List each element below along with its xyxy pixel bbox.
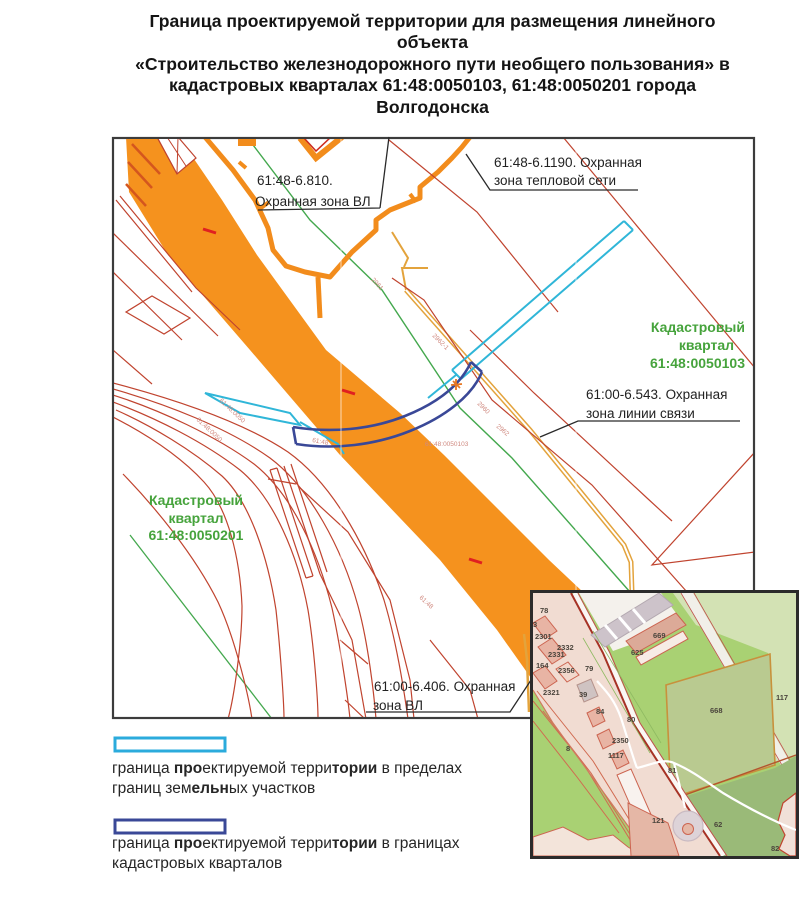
- svg-text:61:00-6.406. Охранная: 61:00-6.406. Охранная: [374, 679, 515, 694]
- svg-text:164: 164: [536, 661, 549, 670]
- svg-text:80: 80: [627, 715, 635, 724]
- svg-text:61:48:0050103: 61:48:0050103: [650, 355, 745, 371]
- svg-text:2301: 2301: [535, 632, 552, 641]
- svg-text:квартал: квартал: [679, 337, 734, 353]
- svg-text:Охранная зона ВЛ: Охранная зона ВЛ: [255, 194, 371, 209]
- svg-text:84: 84: [596, 707, 605, 716]
- svg-text:8: 8: [566, 744, 570, 753]
- svg-text:61:48-6.810.: 61:48-6.810.: [257, 173, 333, 188]
- svg-text:3: 3: [533, 620, 537, 629]
- svg-text:зона линии связи: зона линии связи: [586, 406, 695, 421]
- svg-text:61:48-6.1190. Охранная: 61:48-6.1190. Охранная: [494, 155, 642, 170]
- svg-text:121: 121: [652, 816, 665, 825]
- svg-text:зона тепловой сети: зона тепловой сети: [494, 173, 616, 188]
- svg-text:669: 669: [653, 631, 666, 640]
- svg-text:2321: 2321: [543, 688, 560, 697]
- svg-text:78: 78: [540, 606, 548, 615]
- svg-text:117: 117: [776, 693, 788, 702]
- svg-text:61:48:0050201: 61:48:0050201: [149, 527, 244, 543]
- svg-text:62: 62: [714, 820, 722, 829]
- svg-text:2356: 2356: [558, 666, 575, 675]
- svg-text:668: 668: [710, 706, 723, 715]
- svg-text:39: 39: [579, 690, 587, 699]
- svg-text:625: 625: [631, 648, 644, 657]
- svg-text:Кадастровый: Кадастровый: [651, 319, 745, 335]
- svg-text:61:48:0050103: 61:48:0050103: [425, 441, 469, 448]
- svg-text:зона ВЛ: зона ВЛ: [373, 698, 423, 713]
- svg-text:1117: 1117: [608, 751, 624, 760]
- svg-text:61:00-6.543. Охранная: 61:00-6.543. Охранная: [586, 387, 727, 402]
- svg-text:82: 82: [771, 844, 779, 853]
- svg-text:79: 79: [585, 664, 593, 673]
- svg-text:81: 81: [668, 766, 676, 775]
- svg-text:квартал: квартал: [168, 510, 223, 526]
- svg-text:Кадастровый: Кадастровый: [149, 492, 243, 508]
- svg-text:2350: 2350: [612, 736, 629, 745]
- svg-text:2331: 2331: [548, 650, 565, 659]
